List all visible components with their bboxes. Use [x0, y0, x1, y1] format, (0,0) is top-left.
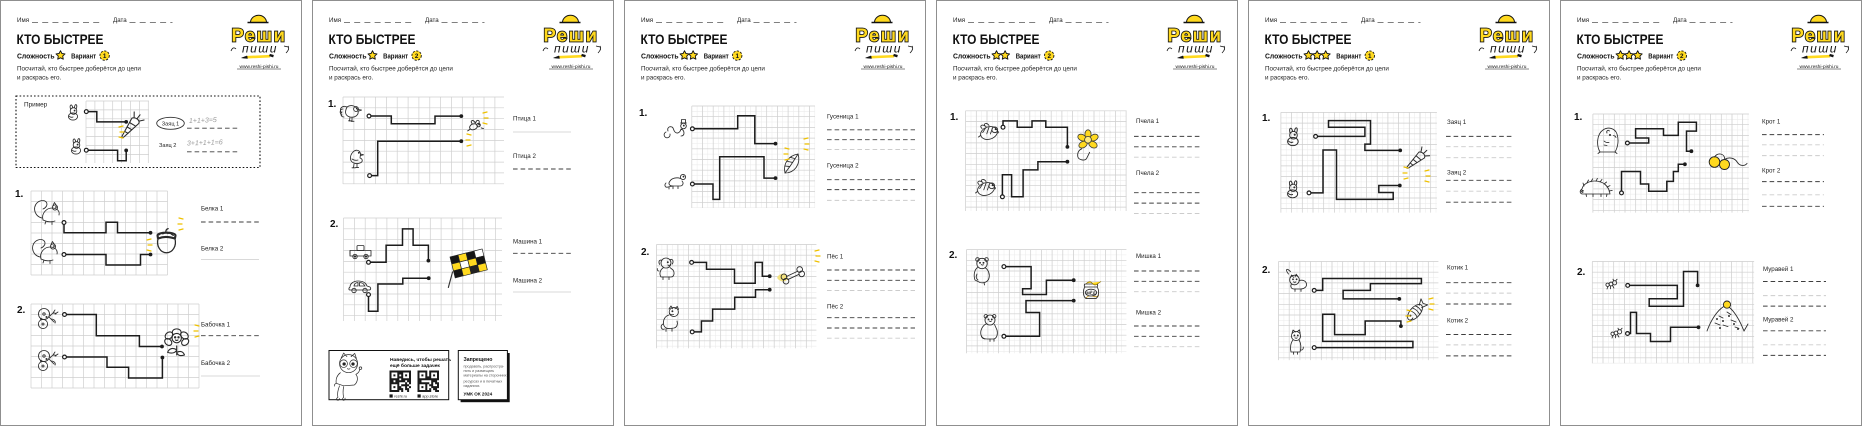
svg-text:КТО БЫСТРЕЕ: КТО БЫСТРЕЕ: [1577, 31, 1664, 47]
svg-text:Сложность: Сложность: [1577, 54, 1615, 61]
svg-text:Дата: Дата: [425, 17, 439, 24]
svg-text:Вариант: Вариант: [704, 54, 729, 61]
svg-text:изданиях.: изданиях.: [464, 384, 481, 388]
svg-text:Птица 1: Птица 1: [513, 116, 536, 123]
svg-text:Имя: Имя: [1577, 17, 1589, 24]
svg-text:Белка 1: Белка 1: [201, 206, 224, 213]
svg-text:1.: 1.: [1262, 113, 1271, 124]
svg-text:ресурсах и в печатных: ресурсах и в печатных: [464, 380, 503, 384]
svg-text:2.: 2.: [641, 247, 650, 258]
svg-text:Посчитай, кто быстрее доберётс: Посчитай, кто быстрее доберётся до цели: [1577, 65, 1701, 73]
svg-text:Белка 2: Белка 2: [201, 246, 224, 253]
svg-text:Посчитай, кто быстрее доберётс: Посчитай, кто быстрее доберётся до цели: [641, 65, 765, 73]
svg-text:Котик 1: Котик 1: [1447, 265, 1469, 272]
svg-text:Имя: Имя: [1265, 17, 1277, 24]
svg-text:Дата: Дата: [1361, 17, 1375, 24]
svg-text:2.: 2.: [1262, 265, 1271, 276]
svg-text:2.: 2.: [1577, 267, 1586, 278]
svg-text:Вариант: Вариант: [1016, 54, 1041, 61]
svg-text:Вариант: Вариант: [1648, 54, 1673, 61]
svg-text:Имя: Имя: [953, 17, 965, 24]
svg-text:Вариант: Вариант: [383, 54, 408, 61]
svg-text:пиши: пиши: [1490, 42, 1526, 56]
svg-text:Посчитай, кто быстрее доберётс: Посчитай, кто быстрее доберётся до цели: [953, 65, 1077, 73]
svg-text:Пёс 1: Пёс 1: [827, 254, 844, 261]
svg-text:2.: 2.: [17, 305, 26, 316]
svg-text:пиши: пиши: [554, 42, 590, 56]
svg-text:Заяц 1: Заяц 1: [162, 121, 179, 127]
svg-text:3+1+1+1=6: 3+1+1+1=6: [187, 139, 223, 147]
svg-text:Бабочка 2: Бабочка 2: [201, 360, 231, 367]
svg-text:Имя: Имя: [329, 17, 341, 24]
svg-text:Запрещено: Запрещено: [464, 357, 493, 363]
svg-text:2.: 2.: [949, 250, 958, 261]
svg-text:Посчитай, кто быстрее доберётс: Посчитай, кто быстрее доберётся до цели: [17, 65, 141, 73]
svg-text:КТО БЫСТРЕЕ: КТО БЫСТРЕЕ: [641, 31, 728, 47]
svg-text:Сложность: Сложность: [641, 54, 679, 61]
svg-text:пиши: пиши: [1178, 42, 1214, 56]
svg-text:1.: 1.: [328, 99, 337, 110]
svg-text:1+1+3=5: 1+1+3=5: [189, 117, 217, 125]
svg-text:1.: 1.: [950, 112, 959, 123]
svg-text:продавать, распростра-: продавать, распростра-: [464, 365, 505, 369]
svg-text:КТО БЫСТРЕЕ: КТО БЫСТРЕЕ: [1265, 31, 1352, 47]
svg-text:пиши: пиши: [866, 42, 902, 56]
svg-text:КТО БЫСТРЕЕ: КТО БЫСТРЕЕ: [329, 31, 416, 47]
svg-text:нять и размещать: нять и размещать: [464, 369, 495, 373]
svg-text:1: 1: [1368, 53, 1372, 60]
svg-text:1.: 1.: [1574, 112, 1583, 123]
svg-text:Крот 2: Крот 2: [1762, 168, 1781, 175]
svg-text:Дата: Дата: [1049, 17, 1063, 24]
svg-text:пиши: пиши: [242, 42, 278, 56]
svg-text:Сложность: Сложность: [1265, 54, 1303, 61]
svg-text:Пчела 2: Пчела 2: [1136, 170, 1160, 177]
svg-text:Сложность: Сложность: [953, 54, 991, 61]
svg-text:Вариант: Вариант: [1336, 54, 1361, 61]
svg-text:Дата: Дата: [113, 17, 127, 24]
svg-text:и раскрась его.: и раскрась его.: [329, 75, 374, 82]
svg-text:МЁД: МЁД: [1086, 290, 1095, 295]
svg-text:ещё больше задачек: ещё больше задачек: [390, 362, 440, 369]
svg-text:КТО БЫСТРЕЕ: КТО БЫСТРЕЕ: [17, 31, 104, 47]
svg-text:reshi.ru: reshi.ru: [394, 394, 407, 398]
svg-text:Сложность: Сложность: [329, 54, 367, 61]
svg-text:Имя: Имя: [17, 17, 29, 24]
svg-text:и раскрась его.: и раскрась его.: [1577, 75, 1622, 82]
svg-text:2: 2: [1047, 53, 1051, 60]
svg-text:Крот 1: Крот 1: [1762, 119, 1781, 126]
svg-text:УМК ОК 2024: УМК ОК 2024: [464, 392, 493, 397]
svg-text:2.: 2.: [330, 219, 339, 230]
svg-text:Посчитай, кто быстрее доберётс: Посчитай, кто быстрее доберётся до цели: [1265, 65, 1389, 73]
svg-text:Дата: Дата: [737, 17, 751, 24]
svg-text:Пёс 2: Пёс 2: [827, 304, 844, 311]
svg-text:и раскрась его.: и раскрась его.: [953, 75, 998, 82]
svg-text:Дата: Дата: [1673, 17, 1687, 24]
svg-text:Муравей 2: Муравей 2: [1763, 316, 1794, 323]
svg-text:Наведись, чтобы решать: Наведись, чтобы решать: [390, 356, 451, 363]
svg-text:Вариант: Вариант: [71, 54, 96, 61]
svg-text:2: 2: [1680, 53, 1684, 60]
svg-text:Имя: Имя: [641, 17, 653, 24]
svg-text:Пример: Пример: [24, 102, 48, 109]
svg-text:1.: 1.: [639, 108, 648, 119]
svg-text:и раскрась его.: и раскрась его.: [641, 75, 686, 82]
svg-text:и раскрась его.: и раскрась его.: [17, 75, 62, 82]
svg-text:1: 1: [735, 53, 739, 60]
svg-text:КТО БЫСТРЕЕ: КТО БЫСТРЕЕ: [953, 31, 1040, 47]
svg-text:Бабочка 1: Бабочка 1: [201, 322, 231, 329]
svg-text:app.store: app.store: [422, 394, 438, 398]
svg-text:Заяц 1: Заяц 1: [1447, 119, 1467, 126]
svg-text:Машина 2: Машина 2: [513, 278, 543, 285]
svg-text:Заяц 2: Заяц 2: [159, 143, 176, 149]
svg-text:Мишка 2: Мишка 2: [1136, 310, 1162, 317]
svg-text:Котик 2: Котик 2: [1447, 318, 1469, 325]
svg-text:Гусеница 1: Гусеница 1: [827, 114, 859, 121]
svg-text:Мишка 1: Мишка 1: [1136, 253, 1162, 260]
svg-text:Птица 2: Птица 2: [513, 153, 536, 160]
svg-text:1.: 1.: [15, 189, 24, 200]
svg-text:Пчела 1: Пчела 1: [1136, 118, 1160, 125]
svg-text:2: 2: [415, 53, 419, 60]
svg-text:Муравей 1: Муравей 1: [1763, 266, 1794, 273]
svg-text:и раскрась его.: и раскрась его.: [1265, 75, 1310, 82]
svg-text:пиши: пиши: [1802, 42, 1838, 56]
svg-text:Заяц 2: Заяц 2: [1447, 170, 1467, 177]
svg-text:Гусеница 2: Гусеница 2: [827, 163, 859, 170]
svg-text:Машина 1: Машина 1: [513, 239, 543, 246]
svg-text:материалы на сторонних: материалы на сторонних: [464, 374, 507, 378]
svg-text:1: 1: [103, 53, 107, 60]
svg-text:Посчитай, кто быстрее доберётс: Посчитай, кто быстрее доберётся до цели: [329, 65, 453, 73]
svg-text:Сложность: Сложность: [17, 54, 55, 61]
